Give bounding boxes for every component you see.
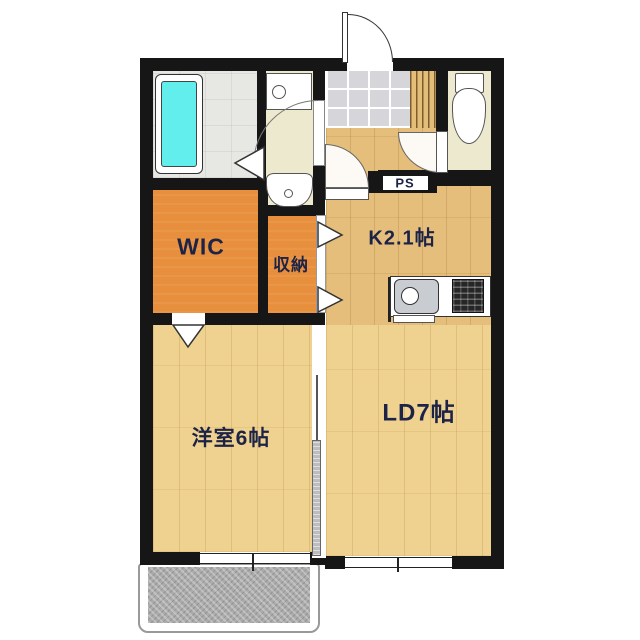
- western-room-label: 洋室6帖: [192, 422, 271, 452]
- living-dining-label: LD7帖: [382, 393, 455, 428]
- storage-fold-arrow-bottom: [318, 287, 342, 312]
- wic-door-arrow: [173, 325, 204, 347]
- door-symbols-layer: [0, 0, 640, 640]
- wic-label: WIC: [177, 234, 225, 261]
- storage-label: 収納: [273, 251, 309, 276]
- storage-fold-arrow-top: [318, 222, 342, 247]
- floor-plan: PS WIC 収納 K2.1帖 LD7帖: [0, 0, 640, 640]
- bathroom-folding-door: [235, 147, 264, 180]
- kitchen-label: K2.1帖: [368, 222, 435, 251]
